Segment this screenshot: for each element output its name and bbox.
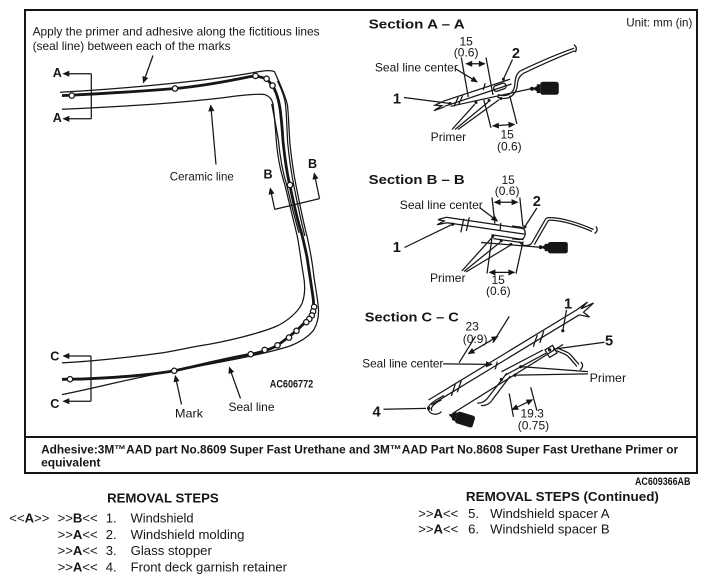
svg-text:1: 1 xyxy=(564,296,572,312)
svg-text:>>A<<: >>A<< xyxy=(58,560,98,575)
svg-text:AC609366AB: AC609366AB xyxy=(635,476,690,488)
svg-text:(0.6): (0.6) xyxy=(495,184,520,198)
svg-text:Windshield spacer B: Windshield spacer B xyxy=(490,522,610,537)
svg-text:Unit: mm (in): Unit: mm (in) xyxy=(626,15,692,29)
svg-text:Adhesive:3M™AAD part No.8609 S: Adhesive:3M™AAD part No.8609 Super Fast … xyxy=(41,442,678,456)
svg-text:Seal line: Seal line xyxy=(229,400,275,414)
svg-text:1.: 1. xyxy=(106,510,117,525)
svg-text:Primer: Primer xyxy=(431,130,467,144)
svg-text:B: B xyxy=(264,168,273,182)
svg-text:Apply the primer and adhesive: Apply the primer and adhesive along the … xyxy=(33,24,320,38)
svg-text:Primer: Primer xyxy=(590,371,627,385)
svg-text:REMOVAL STEPS (Continued): REMOVAL STEPS (Continued) xyxy=(466,489,659,504)
svg-text:5: 5 xyxy=(605,333,613,349)
svg-text:Windshield spacer A: Windshield spacer A xyxy=(490,506,610,521)
svg-text:C: C xyxy=(50,349,59,363)
svg-text:3.: 3. xyxy=(106,543,117,558)
svg-text:Section C – C: Section C – C xyxy=(365,310,460,325)
svg-text:C: C xyxy=(50,397,59,411)
svg-text:Glass stopper: Glass stopper xyxy=(131,543,213,558)
svg-text:>>B<<: >>B<< xyxy=(58,510,98,525)
svg-text:1: 1 xyxy=(393,92,401,108)
svg-text:>>A<<: >>A<< xyxy=(58,543,98,558)
svg-text:Mark: Mark xyxy=(175,406,204,420)
svg-text:(0.6): (0.6) xyxy=(454,45,479,59)
svg-text:4.: 4. xyxy=(106,560,117,575)
svg-text:A: A xyxy=(53,111,62,125)
svg-text:(0.6): (0.6) xyxy=(486,284,511,298)
svg-text:Section A – A: Section A – A xyxy=(369,16,466,31)
svg-text:Seal line center: Seal line center xyxy=(375,60,458,74)
svg-text:2.: 2. xyxy=(106,527,117,542)
svg-text:6.: 6. xyxy=(468,522,479,537)
svg-text:REMOVAL STEPS: REMOVAL STEPS xyxy=(107,490,219,505)
svg-text:(0.9): (0.9) xyxy=(463,332,488,346)
svg-text:Seal line center: Seal line center xyxy=(362,357,443,371)
svg-text:(seal line) between each of th: (seal line) between each of the marks xyxy=(33,39,231,53)
svg-text:2: 2 xyxy=(533,194,541,210)
svg-text:equivalent: equivalent xyxy=(41,456,100,470)
svg-text:>>A<<: >>A<< xyxy=(58,527,98,542)
svg-text:Windshield molding: Windshield molding xyxy=(131,527,245,542)
svg-text:Primer: Primer xyxy=(430,271,466,285)
svg-text:Windshield: Windshield xyxy=(131,510,194,525)
svg-text:4: 4 xyxy=(373,404,382,420)
svg-text:Section B – B: Section B – B xyxy=(369,172,465,187)
svg-text:5.: 5. xyxy=(468,506,479,521)
svg-text:Ceramic line: Ceramic line xyxy=(170,169,234,183)
svg-text:<<A>>: <<A>> xyxy=(9,510,49,525)
svg-text:Seal line center: Seal line center xyxy=(400,198,483,212)
svg-text:2: 2 xyxy=(512,46,520,62)
svg-text:Front deck garnish retainer: Front deck garnish retainer xyxy=(131,560,288,575)
svg-text:B: B xyxy=(308,157,317,171)
svg-text:(0.6): (0.6) xyxy=(497,139,522,153)
svg-text:A: A xyxy=(53,66,62,80)
svg-text:AC606772: AC606772 xyxy=(270,378,313,390)
svg-text:1: 1 xyxy=(393,240,401,256)
svg-text:>>A<<: >>A<< xyxy=(418,522,458,537)
svg-text:>>A<<: >>A<< xyxy=(418,506,458,521)
svg-text:(0.75): (0.75) xyxy=(518,419,549,433)
